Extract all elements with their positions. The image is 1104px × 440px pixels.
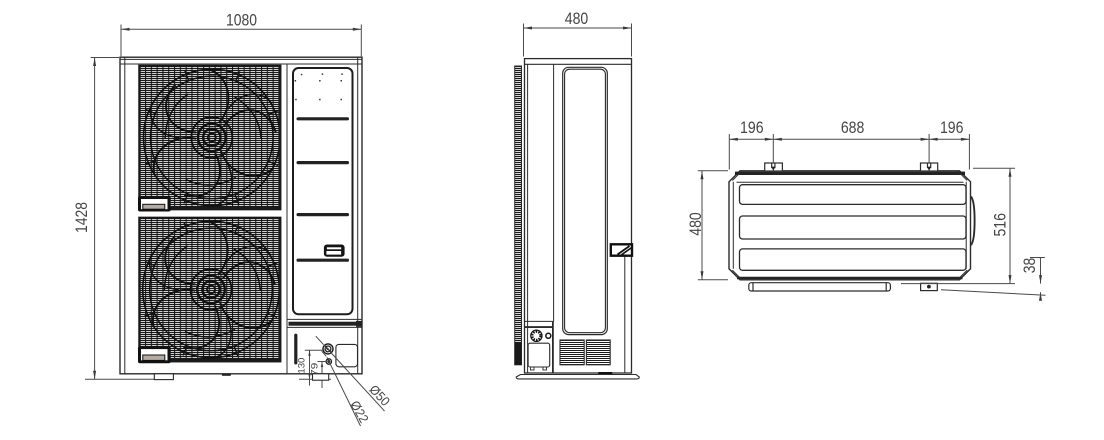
svg-text:38: 38	[1021, 258, 1039, 274]
svg-text:196: 196	[740, 119, 764, 137]
svg-text:1080: 1080	[226, 11, 257, 29]
svg-text:196: 196	[940, 119, 964, 137]
svg-text:480: 480	[565, 10, 589, 28]
svg-text:130: 130	[296, 358, 306, 374]
svg-text:1428: 1428	[73, 202, 91, 233]
svg-text:480: 480	[687, 212, 705, 236]
svg-text:516: 516	[992, 213, 1010, 237]
svg-text:688: 688	[841, 119, 865, 137]
